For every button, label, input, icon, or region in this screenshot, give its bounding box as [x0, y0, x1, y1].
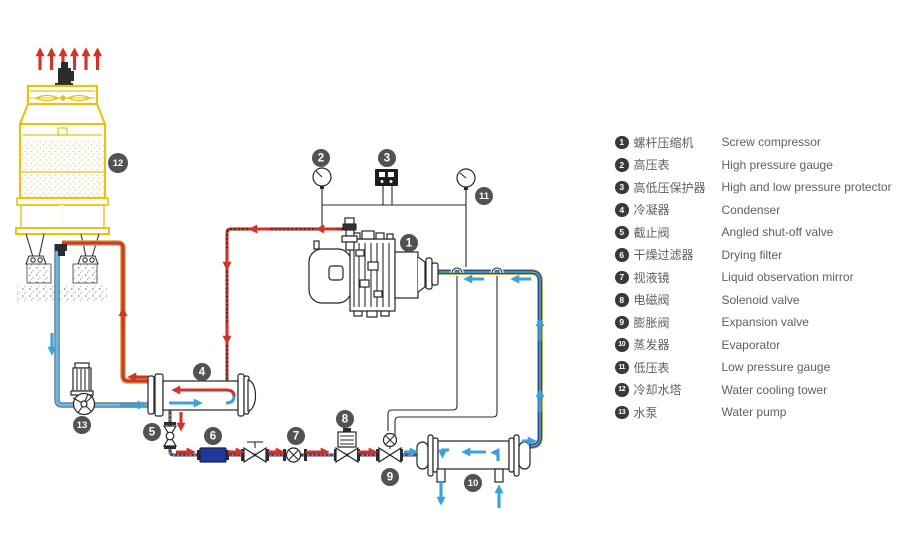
legend-item-label-zh: 电磁阀 [634, 291, 722, 308]
badge-number: 9 [387, 472, 393, 484]
component-badge: 4 [193, 363, 211, 381]
legend-item-number-badge: 7 [615, 271, 629, 285]
legend-item-label-zh: 低压表 [634, 359, 722, 376]
legend-item-label-zh: 膨胀阀 [634, 314, 722, 331]
legend-item-label-zh: 视液镜 [634, 269, 722, 286]
legend-item: 6干燥过滤器Drying filter [615, 244, 892, 267]
legend-item: 4冷凝器Condenser [615, 199, 892, 222]
component-badge: 11 [475, 187, 493, 205]
component-badge: 8 [336, 410, 354, 428]
chilled-water-outlet-port [437, 469, 445, 482]
legend-item-number-badge: 4 [615, 203, 629, 217]
legend-item-label-en: Water pump [722, 405, 787, 419]
component-badge: 3 [378, 149, 396, 167]
suction-pipe [436, 272, 540, 446]
component-badge: 13 [73, 416, 91, 434]
legend-item-label-zh: 截止阀 [634, 224, 722, 241]
component-badge: 6 [204, 427, 222, 445]
legend-item-label-zh: 高低压保护器 [634, 179, 722, 196]
piping-diagram: 12345678910111213 [0, 0, 610, 551]
angle-shut-off-valve [164, 422, 176, 449]
legend-item-label-en: Solenoid valve [722, 293, 800, 307]
legend-item-number-badge: 3 [615, 181, 629, 195]
water-pump [71, 363, 95, 415]
tower-inlet-fitting [55, 244, 67, 251]
legend-item-number-badge: 9 [615, 316, 629, 330]
legend-item-label-en: Low pressure gauge [722, 360, 831, 374]
legend-item: 5截止阀Angled shut-off valve [615, 221, 892, 244]
legend-item: 11低压表Low pressure gauge [615, 356, 892, 379]
ground-hatch [17, 286, 107, 302]
legend-item-label-en: Evaporator [722, 338, 781, 352]
badge-number: 3 [384, 153, 390, 165]
legend-item-number-badge: 12 [615, 383, 629, 397]
legend-item: 13水泵Water pump [615, 401, 892, 424]
legend-item-number-badge: 11 [615, 361, 629, 375]
badge-number: 2 [318, 153, 324, 165]
legend-item-label-en: Condenser [722, 203, 781, 217]
legend-item-number-badge: 10 [615, 338, 629, 352]
legend-item-number-badge: 2 [615, 158, 629, 172]
badge-number: 7 [293, 431, 299, 443]
legend-item: 7视液镜Liquid observation mirror [615, 266, 892, 289]
legend-item-number-badge: 6 [615, 248, 629, 262]
expansion-valve [376, 434, 403, 463]
legend-item-label-en: Expansion valve [722, 315, 809, 329]
chilled-water-inlet-port [495, 469, 503, 482]
component-badge: 5 [143, 423, 161, 441]
legend-item-label-zh: 干燥过滤器 [634, 246, 722, 263]
legend-item-label-en: Angled shut-off valve [722, 225, 834, 239]
badge-number: 4 [199, 367, 206, 379]
component-badge: 10 [464, 474, 482, 492]
legend-item: 9膨胀阀Expansion valve [615, 311, 892, 334]
legend-item: 12冷却水塔Water cooling tower [615, 379, 892, 402]
legend-item-label-en: Water cooling tower [722, 383, 828, 397]
legend-item: 2高压表High pressure gauge [615, 154, 892, 177]
legend-item-label-en: Drying filter [722, 248, 783, 262]
legend-item-label-en: High and low pressure protector [722, 180, 892, 194]
legend-item-number-badge: 13 [615, 406, 629, 420]
legend-item: 10蒸发器Evaporator [615, 334, 892, 357]
badge-number: 8 [342, 414, 349, 426]
badge-number: 11 [479, 191, 490, 202]
badge-number: 6 [210, 431, 216, 443]
fan-motor-icon [55, 62, 74, 86]
pressure-protector [375, 169, 398, 186]
gate-valve [241, 442, 269, 462]
legend-item-label-en: Screw compressor [722, 135, 821, 149]
water-cooling-tower [16, 50, 109, 302]
refrigeration-system-diagram: 12345678910111213 1螺杆压缩机Screw compressor… [0, 0, 922, 551]
badge-number: 1 [406, 238, 413, 250]
legend-item: 1螺杆压缩机Screw compressor [615, 131, 892, 154]
legend-item-number-badge: 1 [615, 136, 629, 150]
legend-item-label-en: Liquid observation mirror [722, 270, 854, 284]
component-badge: 2 [312, 149, 330, 167]
solenoid-valve [334, 428, 360, 462]
suction-flange [426, 258, 432, 289]
legend-item-number-badge: 5 [615, 226, 629, 240]
legend: 1螺杆压缩机Screw compressor2高压表High pressure … [615, 131, 892, 424]
legend-item-label-zh: 水泵 [634, 404, 722, 421]
high-pressure-gauge [313, 168, 331, 189]
component-badge: 1 [400, 234, 418, 252]
badge-number: 5 [149, 427, 156, 439]
legend-item: 3高低压保护器High and low pressure protector [615, 176, 892, 199]
badge-number: 13 [77, 420, 88, 431]
legend-item-number-badge: 8 [615, 293, 629, 307]
legend-item-label-zh: 冷却水塔 [634, 381, 722, 398]
badge-number: 10 [468, 478, 479, 489]
legend-item-label-zh: 高压表 [634, 156, 722, 173]
component-badge: 12 [108, 153, 128, 173]
legend-item-label-zh: 螺杆压缩机 [634, 134, 722, 151]
cooling-water-return-pipe [55, 243, 152, 381]
component-badge: 9 [381, 468, 399, 486]
screw-compressor [309, 218, 438, 317]
legend-item-label-zh: 蒸发器 [634, 336, 722, 353]
legend-item-label-zh: 冷凝器 [634, 201, 722, 218]
low-pressure-gauge [457, 169, 475, 190]
component-badge: 7 [287, 427, 305, 445]
badge-number: 12 [113, 158, 124, 169]
exhaust-air-arrows [40, 50, 98, 70]
legend-item: 8电磁阀Solenoid valve [615, 289, 892, 312]
legend-item-label-en: High pressure gauge [722, 158, 833, 172]
drying-filter [197, 448, 229, 462]
